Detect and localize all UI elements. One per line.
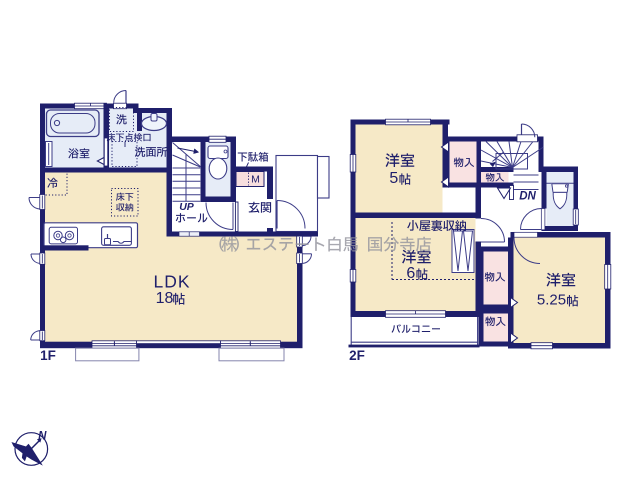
- svg-text:LDK: LDK: [153, 272, 190, 292]
- svg-text:5.25: 5.25: [537, 292, 566, 309]
- svg-text:M: M: [251, 173, 260, 185]
- svg-text:18: 18: [156, 290, 174, 307]
- svg-text:DN: DN: [519, 191, 536, 203]
- svg-text:6: 6: [406, 265, 415, 282]
- svg-text:N: N: [38, 430, 47, 442]
- svg-text:2F: 2F: [349, 348, 365, 363]
- svg-text:1F: 1F: [40, 348, 56, 363]
- svg-text:UP: UP: [179, 201, 195, 213]
- svg-text:5: 5: [389, 170, 398, 187]
